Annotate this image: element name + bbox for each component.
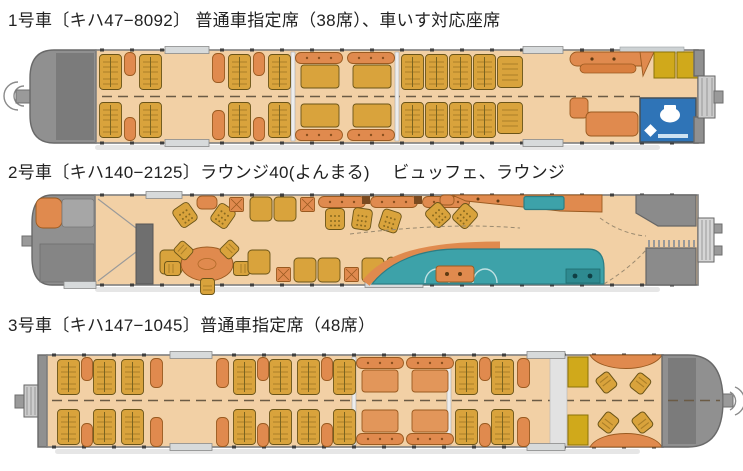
car2-floorplan (0, 188, 743, 310)
train-floorplan-page: 1号車〔キハ47−8092〕 普通車指定席（38席）、車いす対応座席 (0, 0, 743, 471)
car3-title: 3号車〔キハ147−1045〕普通車指定席（48席） (8, 311, 375, 336)
car3-coupler (723, 387, 743, 415)
car1-title: 1号車〔キハ47−8092〕 普通車指定席（38席）、車いす対応座席 (8, 6, 500, 31)
service-stand (436, 266, 474, 282)
car1-coupler (4, 82, 31, 110)
car3-gangway-left (15, 355, 47, 447)
car3-floorplan (0, 343, 743, 468)
car1-floorplan (0, 36, 743, 156)
car2-corner-panel (36, 198, 62, 228)
car1-accessible-toilet (640, 98, 696, 142)
car2-title: 2号車〔キハ140−2125〕ラウンジ40(よんまる) ビュッフェ、ラウンジ (8, 158, 565, 183)
car1-cab-interior (56, 53, 94, 140)
car2-coupler (22, 236, 32, 246)
car1-gangway (694, 50, 723, 143)
